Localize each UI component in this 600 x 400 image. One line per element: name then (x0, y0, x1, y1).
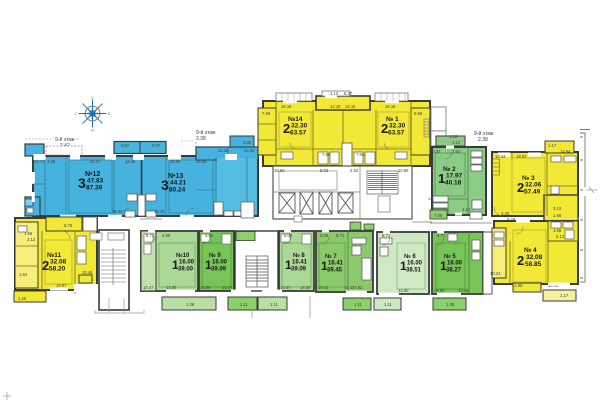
svg-text:10.62: 10.62 (352, 285, 363, 290)
svg-text:13.17: 13.17 (34, 159, 45, 164)
svg-text:16.15: 16.15 (281, 104, 292, 109)
svg-text:2.12: 2.12 (556, 234, 565, 239)
svg-text:10.05: 10.05 (170, 159, 181, 164)
svg-text:38.51: 38.51 (406, 268, 422, 274)
svg-text:1.68: 1.68 (24, 231, 33, 236)
svg-text:4.99: 4.99 (162, 233, 171, 238)
svg-text:16.00: 16.00 (407, 261, 423, 267)
svg-text:13.24: 13.24 (495, 154, 506, 159)
svg-text:16.41: 16.41 (318, 285, 329, 290)
svg-text:14.05: 14.05 (166, 285, 177, 290)
svg-text:14.15: 14.15 (345, 104, 356, 109)
svg-text:10.24: 10.24 (490, 271, 501, 276)
svg-text:5.02: 5.02 (320, 168, 329, 173)
svg-text:1.11: 1.11 (384, 302, 393, 307)
svg-text:40.18: 40.18 (445, 180, 462, 187)
svg-text:10.47: 10.47 (280, 285, 291, 290)
svg-text:32.30: 32.30 (389, 123, 406, 130)
svg-text:8.71: 8.71 (382, 233, 391, 238)
svg-text:6.71: 6.71 (437, 233, 446, 238)
svg-text:1.08: 1.08 (47, 159, 56, 164)
svg-text:6.71: 6.71 (146, 233, 155, 238)
svg-text:6.08: 6.08 (320, 233, 329, 238)
svg-text:32.08: 32.08 (50, 259, 67, 266)
svg-text:7.08: 7.08 (434, 213, 443, 218)
svg-text:С: С (91, 96, 94, 100)
svg-text:10.68: 10.68 (398, 168, 409, 173)
svg-text:20.27: 20.27 (90, 159, 101, 164)
svg-text:№ 4: № 4 (524, 247, 537, 254)
svg-text:3: 3 (78, 175, 86, 191)
svg-text:18.10: 18.10 (154, 209, 165, 214)
svg-text:1.17: 1.17 (548, 143, 557, 148)
svg-text:16.41: 16.41 (328, 261, 344, 267)
svg-text:1.20: 1.20 (18, 296, 27, 301)
svg-text:39.00: 39.00 (178, 267, 194, 273)
svg-text:2.12: 2.12 (27, 237, 36, 242)
svg-text:1.36: 1.36 (446, 302, 455, 307)
svg-text:7.52: 7.52 (452, 149, 461, 154)
svg-text:7.69: 7.69 (322, 152, 331, 157)
svg-text:39.09: 39.09 (291, 267, 307, 273)
svg-text:14.15: 14.15 (330, 104, 341, 109)
svg-text:32.30: 32.30 (291, 123, 308, 130)
svg-text:39.45: 39.45 (327, 268, 343, 274)
svg-text:17.97: 17.97 (446, 173, 463, 180)
svg-text:63.57: 63.57 (388, 130, 405, 137)
svg-text:5.09: 5.09 (284, 233, 293, 238)
svg-text:16.09: 16.09 (200, 285, 211, 290)
svg-text:44.21: 44.21 (170, 180, 187, 187)
svg-text:58.85: 58.85 (525, 261, 542, 268)
svg-text:2: 2 (517, 253, 524, 268)
svg-text:9.48: 9.48 (507, 217, 516, 222)
svg-text:32.06: 32.06 (525, 182, 542, 189)
svg-text:16.00: 16.00 (434, 288, 445, 293)
svg-text:9-й этаж: 9-й этаж (474, 130, 494, 137)
svg-text:15.42: 15.42 (112, 209, 123, 214)
svg-text:0.57: 0.57 (121, 143, 130, 148)
svg-text:1.68: 1.68 (553, 213, 562, 218)
svg-text:39.09: 39.09 (211, 267, 227, 273)
svg-text:1.12: 1.12 (330, 91, 339, 96)
svg-text:Ю: Ю (91, 128, 95, 132)
svg-text:58.20: 58.20 (49, 266, 66, 273)
svg-text:3.10: 3.10 (553, 206, 562, 211)
svg-text:7.6А: 7.6А (356, 152, 365, 157)
svg-text:16.41: 16.41 (292, 260, 308, 266)
svg-text:18.09: 18.09 (196, 159, 207, 164)
svg-text:9-й этаж: 9-й этаж (55, 136, 75, 143)
svg-text:8.37: 8.37 (344, 91, 353, 96)
svg-text:1.11: 1.11 (270, 302, 279, 307)
svg-text:15.82: 15.82 (274, 168, 285, 173)
svg-text:16.00: 16.00 (212, 260, 228, 266)
svg-text:№ 8: № 8 (293, 252, 305, 259)
svg-text:16.00: 16.00 (447, 261, 463, 267)
svg-text:1.02: 1.02 (243, 140, 252, 145)
svg-text:57.49: 57.49 (524, 189, 541, 196)
svg-text:14.64: 14.64 (560, 149, 571, 154)
svg-text:1.12: 1.12 (449, 134, 458, 139)
svg-text:4.13: 4.13 (462, 207, 471, 212)
svg-text:2.52: 2.52 (350, 168, 359, 173)
svg-text:80.24: 80.24 (169, 187, 186, 194)
svg-text:1.11: 1.11 (240, 302, 249, 307)
svg-text:8.71: 8.71 (336, 233, 345, 238)
svg-text:10.47: 10.47 (143, 285, 154, 290)
svg-text:1.68: 1.68 (553, 228, 562, 233)
svg-text:38.27: 38.27 (446, 268, 462, 274)
svg-text:12.06: 12.06 (125, 159, 136, 164)
svg-text:1.17: 1.17 (560, 293, 569, 298)
svg-text:0.57: 0.57 (152, 143, 161, 148)
svg-text:14.00: 14.00 (398, 288, 409, 293)
svg-text:1.64: 1.64 (19, 272, 28, 277)
svg-text:10.37: 10.37 (430, 149, 441, 154)
svg-text:18.02: 18.02 (516, 154, 527, 159)
svg-text:4.93: 4.93 (205, 233, 214, 238)
svg-text:32.08: 32.08 (526, 254, 543, 261)
svg-text:7.69: 7.69 (262, 111, 271, 116)
svg-text:3: 3 (161, 177, 169, 193)
svg-text:9-й этаж: 9-й этаж (196, 129, 216, 136)
svg-text:9.68: 9.68 (414, 111, 423, 116)
svg-text:63.57: 63.57 (290, 130, 307, 137)
svg-text:12.32: 12.32 (218, 148, 229, 153)
svg-text:С: С (75, 112, 78, 116)
svg-text:87.39: 87.39 (86, 185, 103, 192)
svg-text:47.83: 47.83 (87, 178, 104, 185)
svg-text:14.08: 14.08 (512, 283, 523, 288)
svg-text:16.00: 16.00 (179, 260, 195, 266)
svg-text:1.12: 1.12 (452, 140, 461, 145)
svg-text:3.40: 3.40 (501, 211, 510, 216)
svg-text:10.07: 10.07 (56, 283, 67, 288)
svg-text:2.38: 2.38 (478, 137, 488, 143)
svg-text:16.15: 16.15 (385, 104, 396, 109)
svg-text:16.30: 16.30 (300, 285, 311, 290)
svg-text:10.45: 10.45 (458, 288, 469, 293)
svg-text:1.38: 1.38 (186, 302, 195, 307)
svg-text:10.45: 10.45 (82, 270, 93, 275)
svg-text:2.38: 2.38 (196, 136, 206, 142)
svg-text:5.76: 5.76 (64, 223, 73, 228)
svg-text:10.47: 10.47 (222, 285, 233, 290)
svg-text:1.11: 1.11 (354, 302, 363, 307)
svg-text:14.02: 14.02 (244, 148, 255, 153)
